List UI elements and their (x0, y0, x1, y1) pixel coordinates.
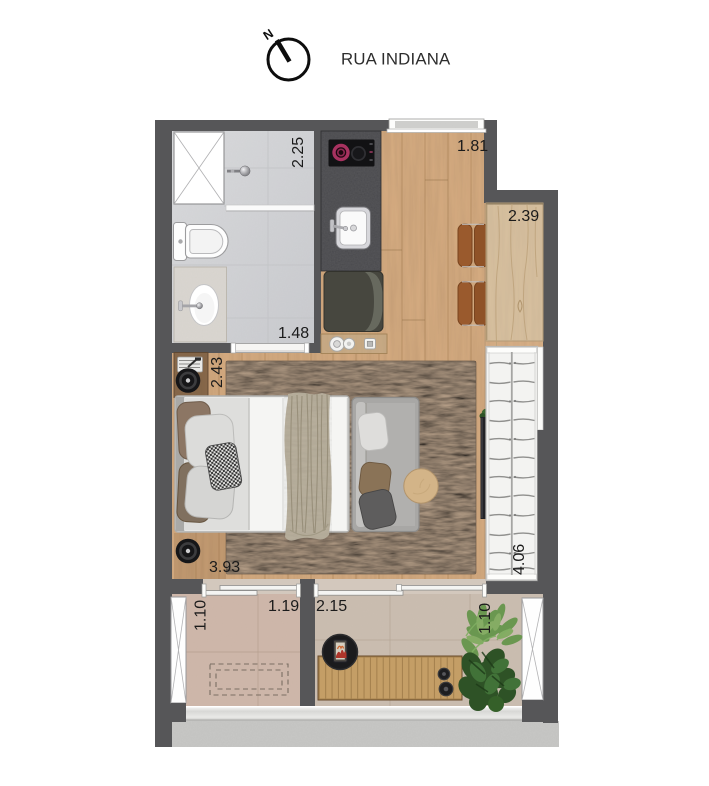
svg-text:N: N (261, 26, 276, 43)
svg-text:2.25: 2.25 (290, 137, 307, 168)
svg-text:1.10: 1.10 (477, 603, 494, 634)
svg-text:2.15: 2.15 (316, 598, 347, 615)
svg-text:3.93: 3.93 (209, 559, 240, 576)
svg-text:1.48: 1.48 (278, 325, 309, 342)
svg-text:1.81: 1.81 (457, 138, 488, 155)
svg-text:1.10: 1.10 (193, 600, 210, 631)
svg-text:2.39: 2.39 (508, 208, 539, 225)
svg-text:1.19: 1.19 (268, 598, 299, 615)
svg-text:4.06: 4.06 (511, 544, 528, 575)
svg-text:RUA INDIANA: RUA INDIANA (341, 50, 451, 69)
svg-text:2.43: 2.43 (209, 357, 226, 388)
